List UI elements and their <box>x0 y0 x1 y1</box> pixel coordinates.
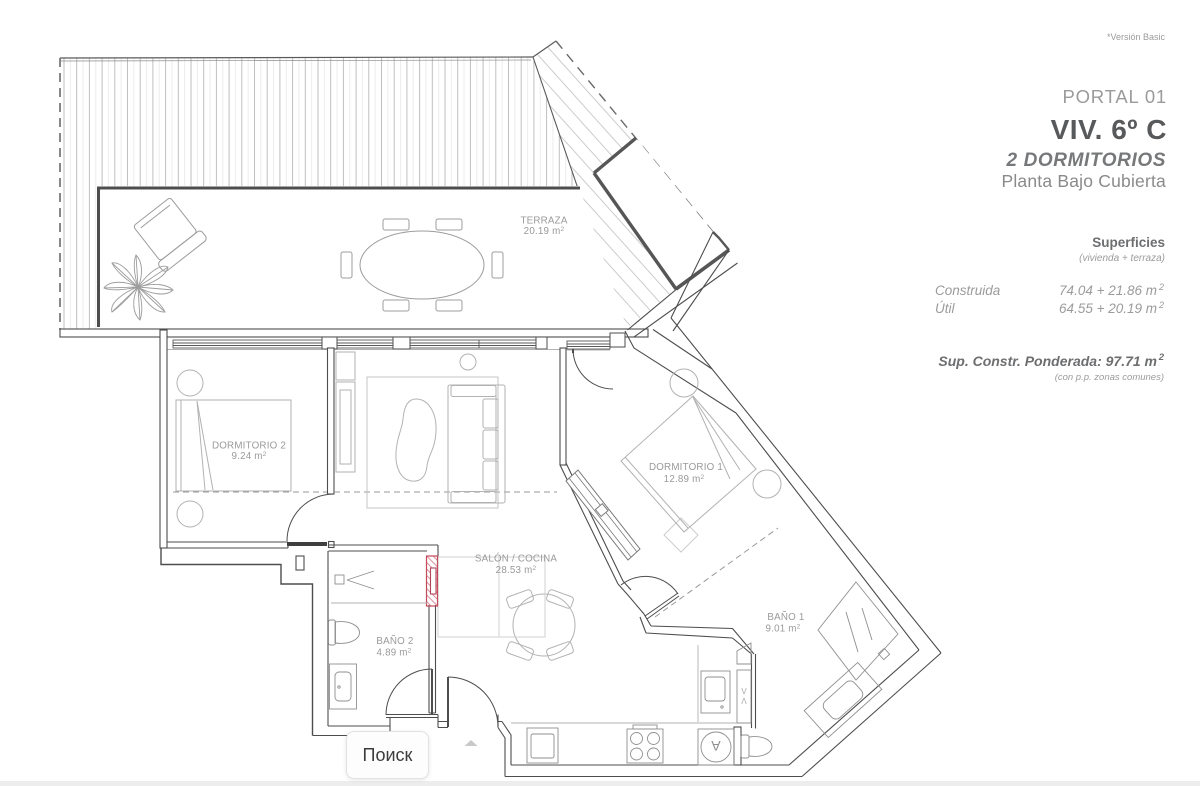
svg-text:12.89 m2: 12.89 m2 <box>664 474 705 485</box>
svg-text:Útil: Útil <box>935 301 955 316</box>
svg-text:TERRAZA: TERRAZA <box>520 215 567 226</box>
svg-text:Construida: Construida <box>935 283 1001 298</box>
svg-text:BAÑO 2: BAÑO 2 <box>376 636 413 647</box>
svg-text:(vivienda + terraza): (vivienda + terraza) <box>1079 253 1165 264</box>
svg-text:PORTAL 01: PORTAL 01 <box>1062 86 1167 107</box>
svg-text:9.24 m2: 9.24 m2 <box>232 451 267 462</box>
svg-text:20.19 m2: 20.19 m2 <box>524 226 565 237</box>
svg-text:*Versión Basic: *Versión Basic <box>1107 32 1166 42</box>
svg-text:64.55 + 20.19 m: 64.55 + 20.19 m <box>1059 301 1157 316</box>
svg-text:(con p.p. zonas comunes): (con p.p. zonas comunes) <box>1055 372 1164 383</box>
svg-text:9.01 m2: 9.01 m2 <box>766 624 801 635</box>
svg-text:28.53 m2: 28.53 m2 <box>496 565 537 576</box>
svg-text:V: V <box>741 696 747 705</box>
svg-text:4.89 m2: 4.89 m2 <box>377 648 412 659</box>
svg-text:Superficies: Superficies <box>1092 235 1165 250</box>
svg-text:Planta Bajo Cubierta: Planta Bajo Cubierta <box>1001 171 1166 191</box>
svg-text:DORMITORIO 1: DORMITORIO 1 <box>649 462 723 473</box>
svg-text:2 DORMITORIOS: 2 DORMITORIOS <box>1006 150 1166 171</box>
svg-text:2: 2 <box>1158 282 1164 292</box>
svg-text:74.04 + 21.86 m: 74.04 + 21.86 m <box>1059 283 1157 298</box>
svg-text:BAÑO 1: BAÑO 1 <box>767 612 804 623</box>
svg-text:2: 2 <box>1158 352 1165 363</box>
svg-text:V: V <box>741 687 747 696</box>
svg-text:2: 2 <box>1158 300 1164 310</box>
svg-text:Sup. Constr. Ponderada: 97.71: Sup. Constr. Ponderada: 97.71 m <box>938 353 1157 369</box>
svg-text:SALÓN / COCINA: SALÓN / COCINA <box>475 554 558 565</box>
svg-text:VIV. 6º C: VIV. 6º C <box>1051 114 1167 145</box>
svg-text:A: A <box>711 738 721 754</box>
